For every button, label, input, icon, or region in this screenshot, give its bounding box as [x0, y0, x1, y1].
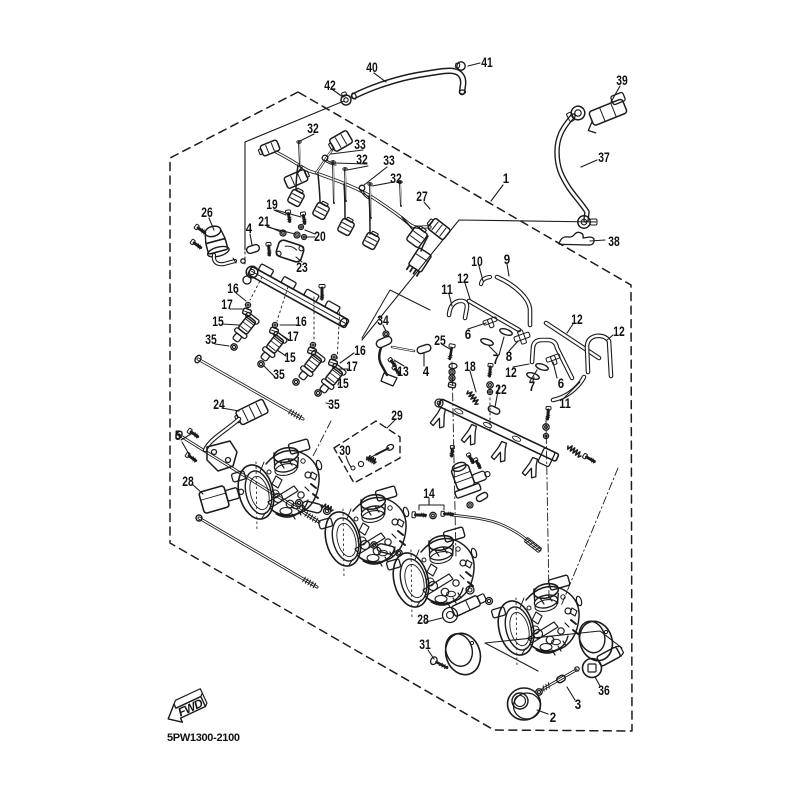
svg-text:35: 35 — [205, 331, 217, 347]
svg-text:14: 14 — [423, 485, 435, 501]
svg-text:5PW1300-2100: 5PW1300-2100 — [167, 732, 240, 744]
svg-text:11: 11 — [441, 281, 453, 297]
svg-text:41: 41 — [481, 54, 493, 70]
svg-text:23: 23 — [296, 259, 308, 275]
svg-text:36: 36 — [598, 682, 610, 698]
svg-text:4: 4 — [423, 363, 430, 379]
svg-text:35: 35 — [328, 396, 340, 412]
svg-text:32: 32 — [390, 170, 402, 186]
svg-text:28: 28 — [182, 473, 194, 489]
svg-text:19: 19 — [266, 196, 278, 212]
svg-text:12: 12 — [571, 311, 583, 327]
svg-text:42: 42 — [324, 77, 336, 93]
svg-text:32: 32 — [356, 151, 368, 167]
svg-text:12: 12 — [613, 323, 625, 339]
svg-text:27: 27 — [416, 188, 428, 204]
svg-text:5: 5 — [175, 427, 182, 443]
svg-text:15: 15 — [212, 313, 224, 329]
svg-text:28: 28 — [417, 611, 429, 627]
svg-text:7: 7 — [493, 351, 500, 367]
svg-text:2: 2 — [550, 709, 557, 725]
svg-text:34: 34 — [377, 312, 389, 328]
svg-text:18: 18 — [464, 358, 476, 374]
svg-text:20: 20 — [314, 228, 326, 244]
svg-text:39: 39 — [616, 72, 628, 88]
svg-text:16: 16 — [354, 342, 366, 358]
svg-text:26: 26 — [201, 204, 213, 220]
svg-text:17: 17 — [346, 358, 358, 374]
svg-text:8: 8 — [506, 348, 513, 364]
svg-text:33: 33 — [383, 152, 395, 168]
svg-text:1: 1 — [503, 170, 510, 186]
svg-text:15: 15 — [284, 349, 296, 365]
svg-text:40: 40 — [366, 59, 378, 75]
svg-text:29: 29 — [391, 407, 403, 423]
svg-text:7: 7 — [529, 378, 536, 394]
svg-text:33: 33 — [354, 136, 366, 152]
svg-text:12: 12 — [505, 364, 517, 380]
svg-text:13: 13 — [397, 363, 409, 379]
svg-text:6: 6 — [465, 326, 472, 342]
svg-text:21: 21 — [258, 213, 270, 229]
svg-text:24: 24 — [213, 396, 225, 412]
svg-text:35: 35 — [273, 366, 285, 382]
svg-text:17: 17 — [287, 328, 299, 344]
svg-text:17: 17 — [221, 296, 233, 312]
svg-text:6: 6 — [558, 375, 565, 391]
svg-text:32: 32 — [307, 120, 319, 136]
svg-text:30: 30 — [339, 442, 351, 458]
svg-text:15: 15 — [337, 375, 349, 391]
svg-text:12: 12 — [457, 270, 469, 286]
svg-text:11: 11 — [559, 395, 571, 411]
svg-text:16: 16 — [227, 280, 239, 296]
svg-text:16: 16 — [295, 313, 307, 329]
svg-text:37: 37 — [598, 149, 610, 165]
svg-text:3: 3 — [575, 696, 582, 712]
svg-text:10: 10 — [471, 253, 483, 269]
svg-text:4: 4 — [246, 220, 253, 236]
svg-text:31: 31 — [419, 636, 431, 652]
svg-text:9: 9 — [504, 251, 511, 267]
svg-text:22: 22 — [495, 381, 507, 397]
svg-text:38: 38 — [608, 233, 620, 249]
svg-text:25: 25 — [434, 332, 446, 348]
